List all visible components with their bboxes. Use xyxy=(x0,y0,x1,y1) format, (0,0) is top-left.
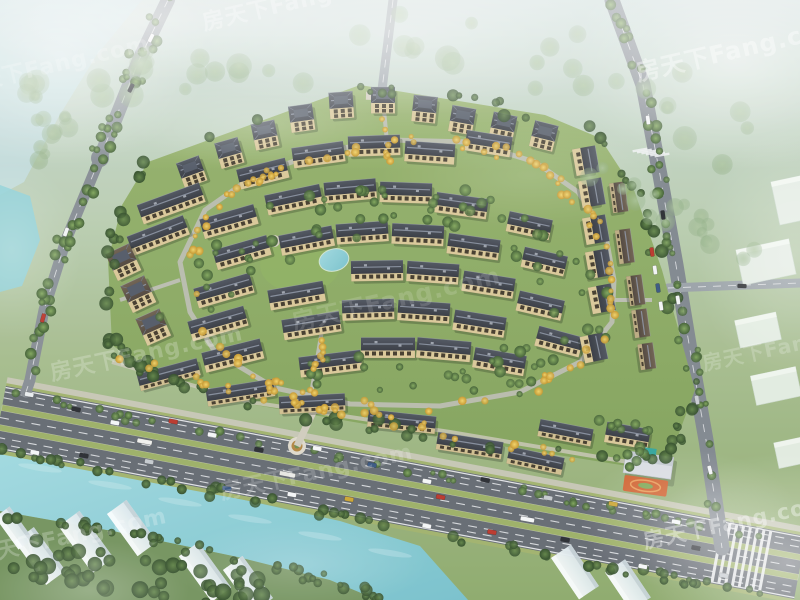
aerial-render: 房天下Fang.com房天下Fang.com房天下Fang.com房天下Fang… xyxy=(0,0,800,600)
scene-canvas: 房天下Fang.com房天下Fang.com房天下Fang.com房天下Fang… xyxy=(0,0,800,600)
